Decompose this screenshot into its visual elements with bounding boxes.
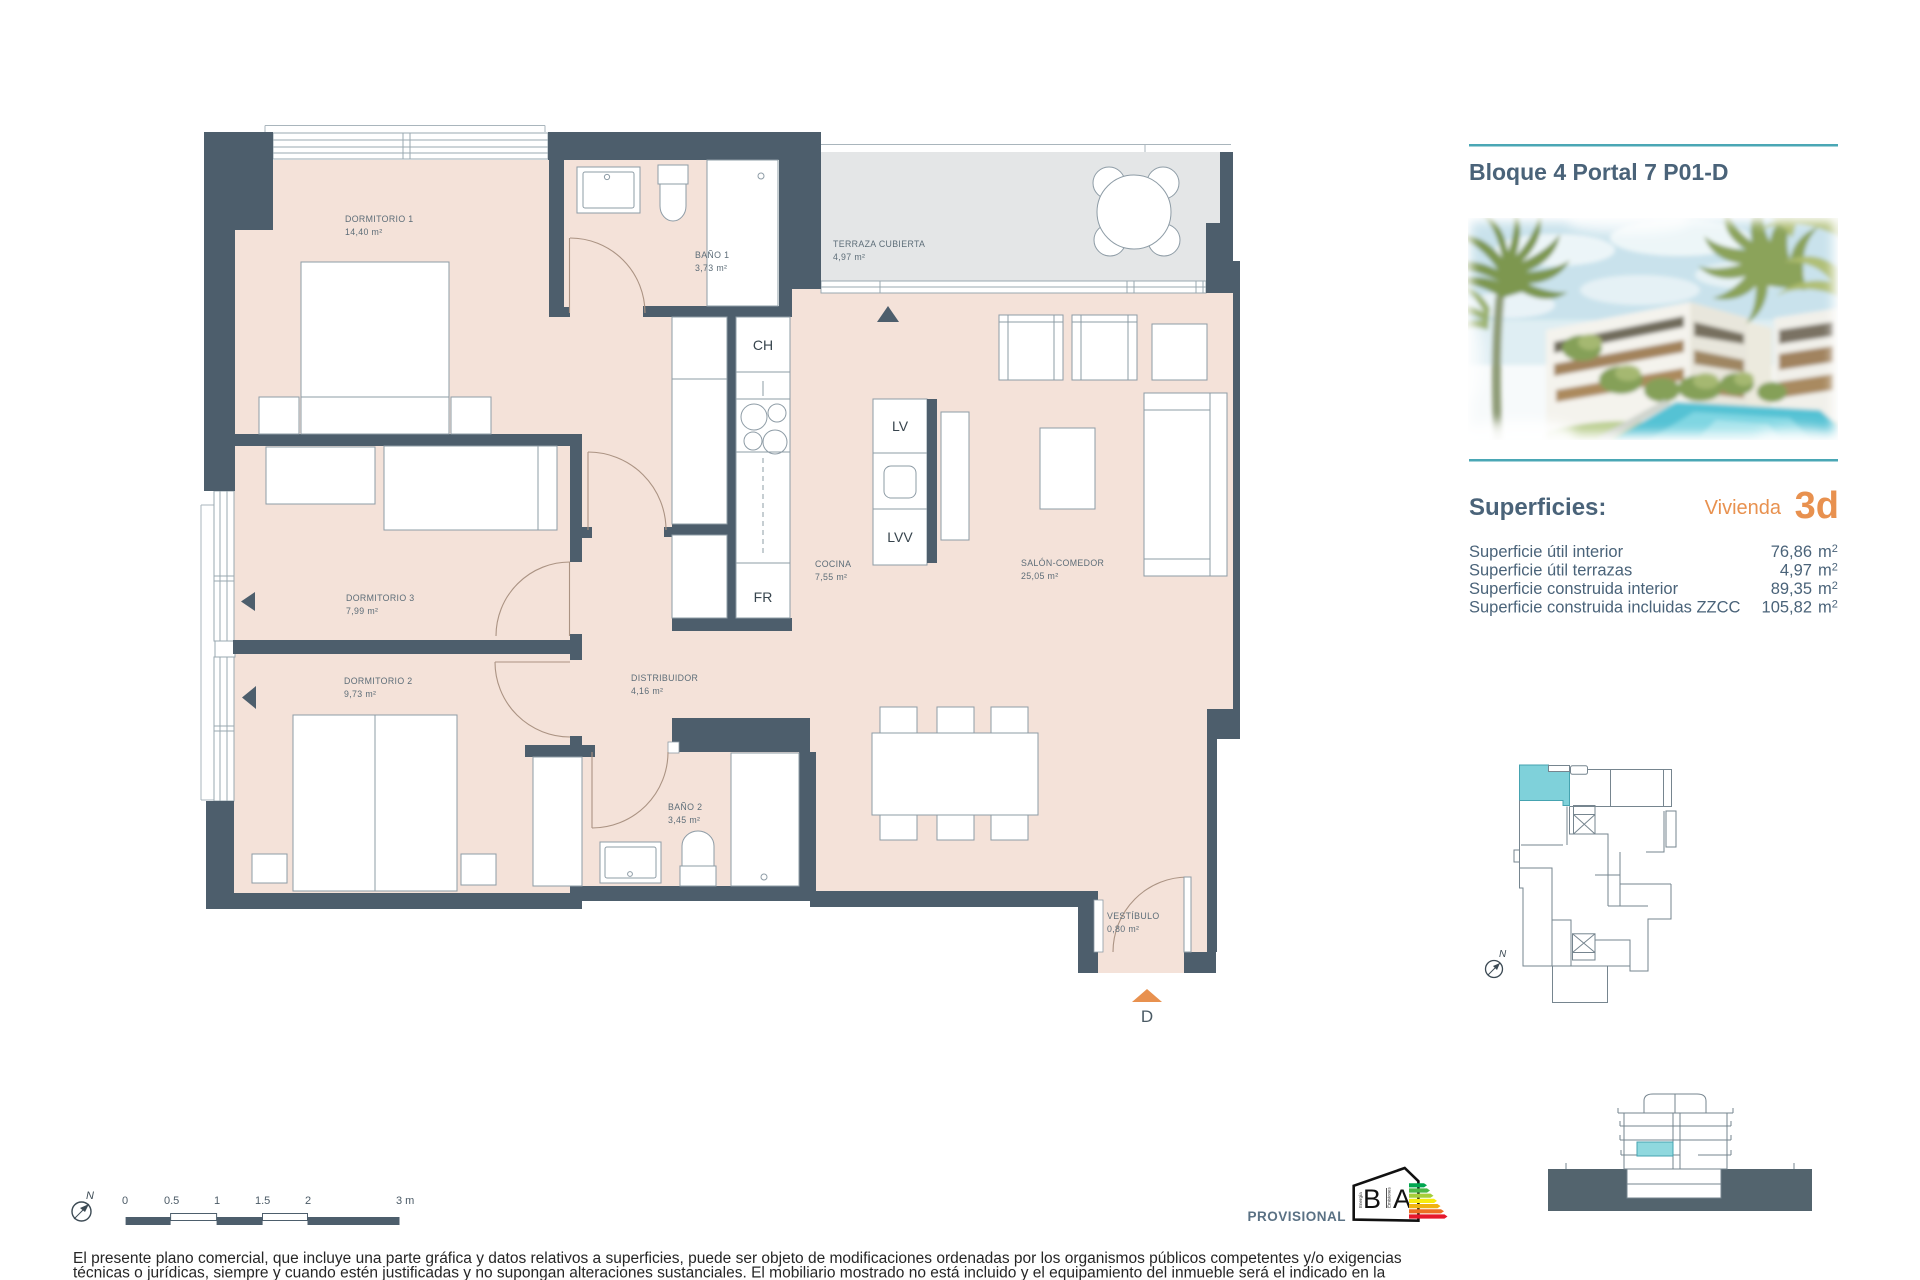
svg-text:N: N xyxy=(86,1190,94,1202)
svg-text:Bloque 4 Portal 7 P01-D: Bloque 4 Portal 7 P01-D xyxy=(1469,159,1728,185)
svg-text:Vivienda: Vivienda xyxy=(1705,497,1782,519)
svg-text:DISTRIBUIDOR: DISTRIBUIDOR xyxy=(631,673,698,683)
svg-text:Energía: Energía xyxy=(1358,1192,1363,1208)
svg-text:DORMITORIO 2: DORMITORIO 2 xyxy=(344,676,413,686)
svg-text:Emisiones: Emisiones xyxy=(1387,1186,1392,1208)
svg-text:3,73 m²: 3,73 m² xyxy=(695,263,727,273)
svg-text:COCINA: COCINA xyxy=(815,559,851,569)
svg-text:Superficie útil terrazas: Superficie útil terrazas xyxy=(1469,562,1632,580)
svg-text:3 m: 3 m xyxy=(396,1195,414,1207)
svg-text:7,55 m²: 7,55 m² xyxy=(815,572,847,582)
svg-text:25,05 m²: 25,05 m² xyxy=(1021,571,1059,581)
svg-text:DORMITORIO 3: DORMITORIO 3 xyxy=(346,593,415,603)
svg-text:BAÑO 1: BAÑO 1 xyxy=(695,250,729,260)
svg-text:1.5: 1.5 xyxy=(255,1195,270,1207)
svg-text:3d: 3d xyxy=(1795,485,1839,527)
svg-text:76,86: 76,86 xyxy=(1771,543,1812,561)
svg-text:VESTÍBULO: VESTÍBULO xyxy=(1107,911,1160,921)
svg-text:CH: CH xyxy=(753,337,773,353)
svg-text:14,40 m²: 14,40 m² xyxy=(345,227,383,237)
svg-text:9,73 m²: 9,73 m² xyxy=(344,689,376,699)
svg-text:Superficies:: Superficies: xyxy=(1469,494,1606,521)
svg-text:PROVISIONAL: PROVISIONAL xyxy=(1247,1209,1346,1224)
svg-text:3,45 m²: 3,45 m² xyxy=(668,815,700,825)
svg-text:Superficie construida incluida: Superficie construida incluidas ZZCC xyxy=(1469,599,1741,617)
svg-text:N: N xyxy=(1499,949,1507,960)
svg-text:0: 0 xyxy=(122,1195,128,1207)
svg-text:LV: LV xyxy=(892,418,909,434)
svg-text:89,35: 89,35 xyxy=(1771,580,1812,598)
svg-text:4,97 m²: 4,97 m² xyxy=(833,252,865,262)
svg-text:BAÑO 2: BAÑO 2 xyxy=(668,802,702,812)
svg-text:técnicas o jurídicas, siempre: técnicas o jurídicas, siempre y cuando e… xyxy=(73,1265,1386,1280)
svg-text:A: A xyxy=(1393,1184,1411,1214)
svg-text:FR: FR xyxy=(754,589,773,605)
svg-text:105,82: 105,82 xyxy=(1762,599,1812,617)
svg-text:4,97: 4,97 xyxy=(1780,562,1812,580)
svg-text:LVV: LVV xyxy=(887,529,913,545)
svg-text:7,99 m²: 7,99 m² xyxy=(346,606,378,616)
svg-text:D: D xyxy=(1141,1007,1153,1026)
svg-text:Superficie construida interior: Superficie construida interior xyxy=(1469,580,1679,598)
svg-text:0,80 m²: 0,80 m² xyxy=(1107,924,1139,934)
svg-text:B: B xyxy=(1363,1184,1381,1214)
svg-text:SALÓN-COMEDOR: SALÓN-COMEDOR xyxy=(1021,558,1104,568)
svg-text:0.5: 0.5 xyxy=(164,1195,179,1207)
svg-text:1: 1 xyxy=(214,1195,220,1207)
svg-text:4,16 m²: 4,16 m² xyxy=(631,686,663,696)
svg-text:DORMITORIO 1: DORMITORIO 1 xyxy=(345,214,414,224)
svg-text:2: 2 xyxy=(305,1195,311,1207)
svg-text:TERRAZA CUBIERTA: TERRAZA CUBIERTA xyxy=(833,239,925,249)
svg-text:Superficie útil interior: Superficie útil interior xyxy=(1469,543,1624,561)
